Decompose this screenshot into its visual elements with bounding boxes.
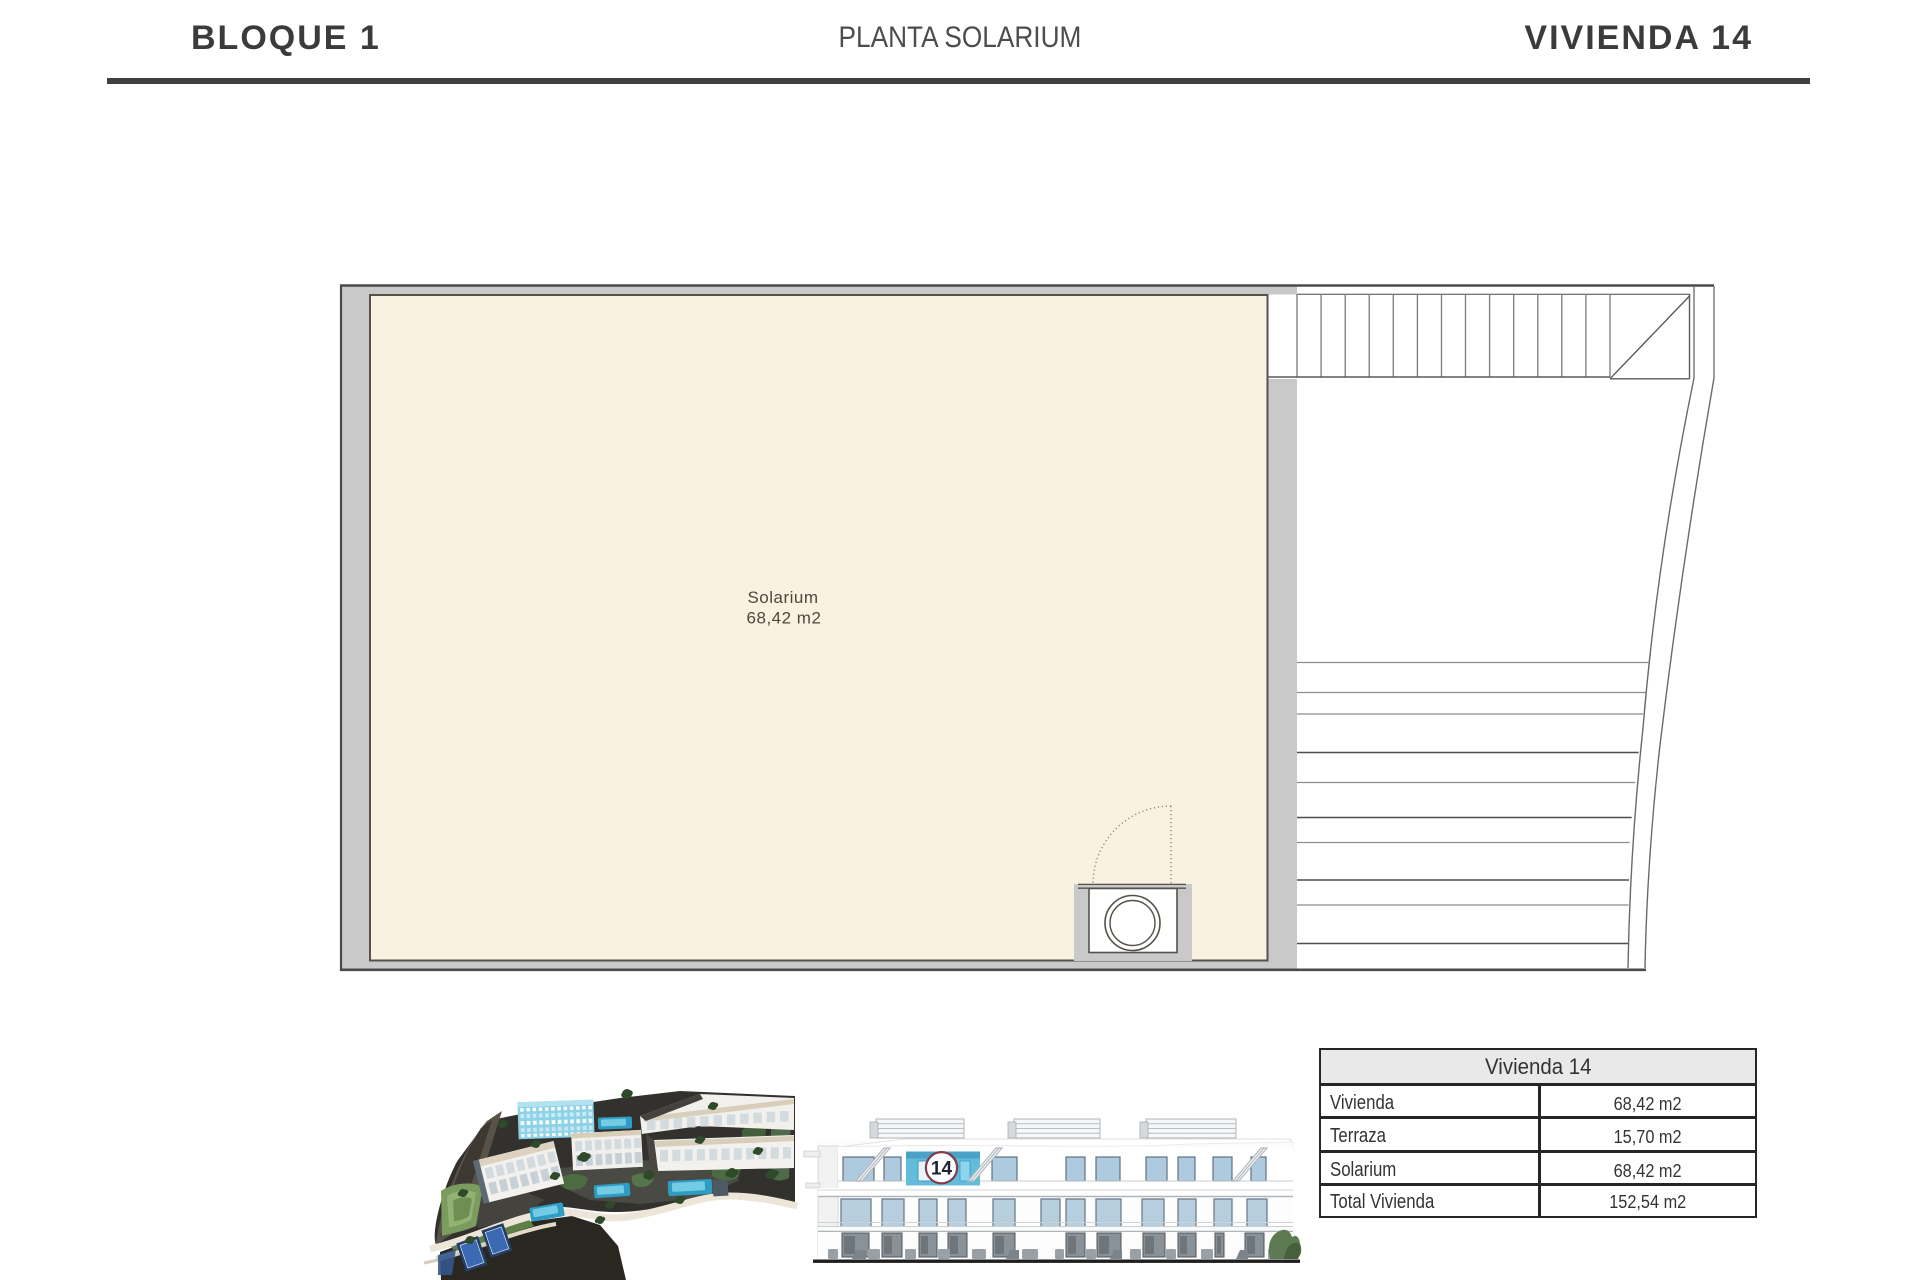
svg-text:14: 14 xyxy=(931,1159,953,1180)
